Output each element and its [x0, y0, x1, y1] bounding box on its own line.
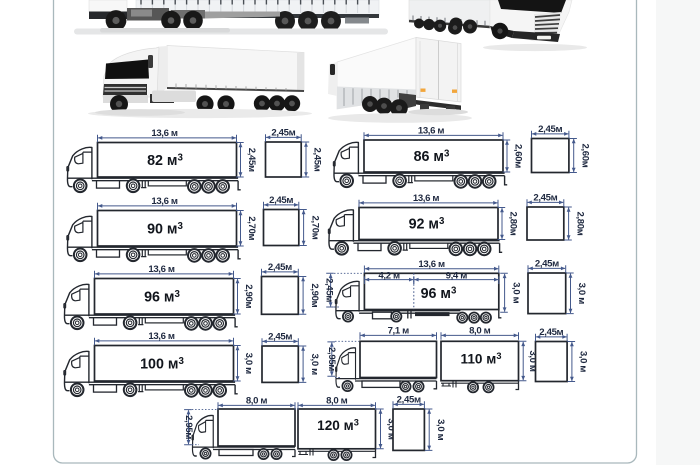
svg-text:13,6 м: 13,6 м — [418, 126, 445, 137]
svg-text:3,0 м: 3,0 м — [510, 282, 521, 304]
svg-text:9,4 м: 9,4 м — [446, 271, 468, 282]
svg-text:13,6 м: 13,6 м — [151, 128, 178, 139]
svg-text:13,6 м: 13,6 м — [148, 264, 175, 275]
svg-text:3,0 м: 3,0 м — [243, 353, 254, 375]
svg-text:7,1 м: 7,1 м — [388, 326, 410, 337]
svg-text:2,45м: 2,45м — [269, 195, 293, 206]
svg-text:2,45м: 2,45м — [312, 147, 323, 171]
svg-text:2,95м: 2,95м — [326, 347, 337, 371]
svg-text:2,45м: 2,45м — [271, 128, 295, 139]
svg-text:120 м3: 120 м3 — [317, 418, 359, 434]
svg-text:8,0 м: 8,0 м — [246, 396, 268, 407]
svg-text:3,0 м: 3,0 м — [576, 283, 587, 305]
svg-text:2,45м: 2,45м — [246, 148, 257, 172]
svg-text:13,6 м: 13,6 м — [418, 259, 445, 270]
svg-text:13,6 м: 13,6 м — [413, 193, 440, 204]
svg-text:2,45м: 2,45м — [268, 332, 292, 343]
svg-text:3,0 м: 3,0 м — [309, 354, 320, 376]
svg-text:2,95м: 2,95м — [183, 415, 194, 439]
svg-text:2,45м: 2,45м — [397, 395, 421, 406]
svg-text:110 м3: 110 м3 — [461, 351, 502, 367]
svg-text:4,2 м: 4,2 м — [378, 271, 400, 282]
svg-text:2,90м: 2,90м — [309, 283, 320, 307]
svg-text:2,70м: 2,70м — [309, 215, 320, 239]
svg-text:13,6 м: 13,6 м — [148, 331, 175, 342]
svg-text:2,80м: 2,80м — [508, 211, 519, 235]
svg-text:3,0 м: 3,0 м — [578, 351, 589, 373]
svg-text:3,0 м: 3,0 м — [435, 419, 446, 441]
svg-text:2,60м: 2,60м — [513, 144, 524, 168]
svg-text:2,45м: 2,45м — [535, 259, 559, 270]
svg-text:2,45м: 2,45м — [324, 278, 335, 302]
svg-text:100 м3: 100 м3 — [140, 356, 184, 373]
svg-text:13,6 м: 13,6 м — [151, 196, 178, 207]
svg-text:2,70м: 2,70м — [246, 216, 257, 240]
svg-text:8,0 м: 8,0 м — [326, 396, 348, 407]
svg-text:2,45м: 2,45м — [268, 262, 292, 273]
svg-text:2,45м: 2,45м — [538, 124, 562, 135]
svg-text:2,45м: 2,45м — [533, 193, 557, 204]
svg-text:2,45м: 2,45м — [539, 327, 563, 338]
svg-text:8,0 м: 8,0 м — [469, 326, 491, 337]
svg-text:2,80м: 2,80м — [574, 211, 585, 235]
svg-text:2,60м: 2,60м — [579, 143, 590, 167]
svg-text:2,90м: 2,90м — [243, 284, 254, 308]
